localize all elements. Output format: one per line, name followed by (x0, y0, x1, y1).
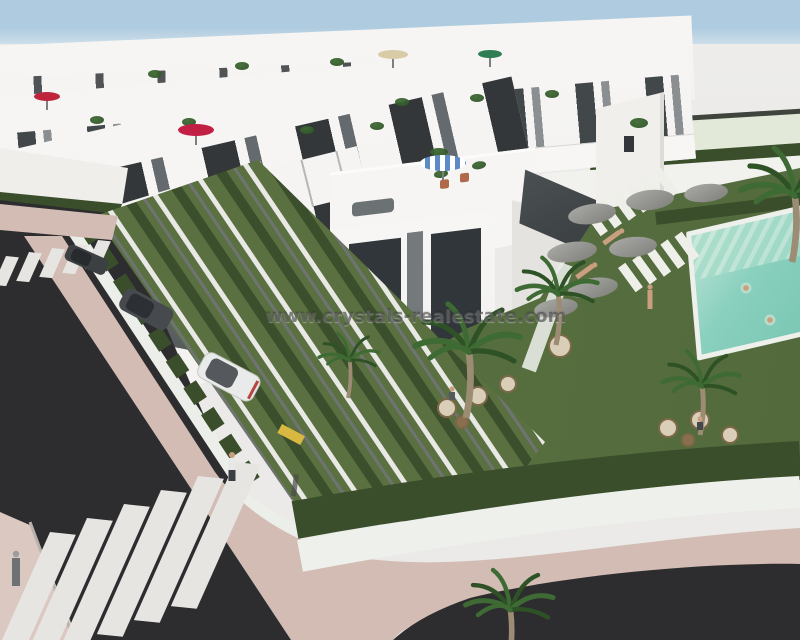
seated-person (449, 386, 455, 400)
swimming-pool (686, 203, 800, 361)
lawn-walker (647, 284, 652, 309)
garden-table (682, 434, 694, 446)
pedestrian (229, 452, 236, 481)
seated-person (697, 416, 703, 430)
watermark: www.crystals-realestate.com (266, 306, 567, 327)
architectural-rendering: www.crystals-realestate.com (0, 0, 800, 640)
